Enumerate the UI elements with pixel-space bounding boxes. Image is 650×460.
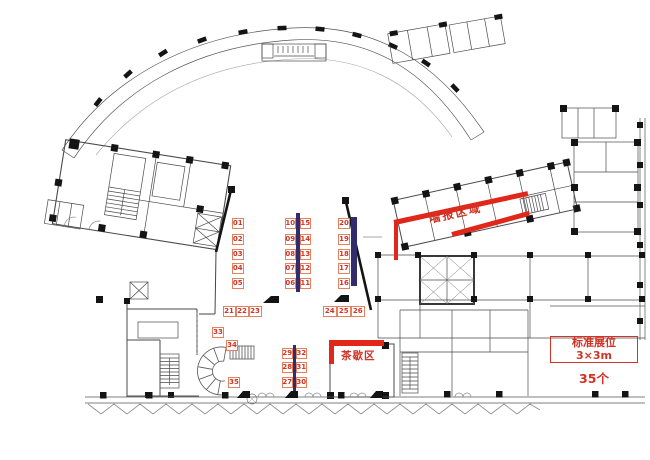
- tea-break-label: 茶歇区: [341, 348, 376, 363]
- legend-booth-count: 35个: [550, 368, 638, 387]
- poster-area-line-end: [394, 222, 399, 260]
- annotation-layer: 墙报区域 茶歇区 标准展位 3×3m 35个: [0, 0, 650, 460]
- tea-break-bracket-v: [329, 340, 334, 364]
- tea-break-bracket-h: [329, 340, 384, 346]
- floor-plan: 0102030405060708091011121314151617181920…: [0, 0, 650, 460]
- poster-area-label: 墙报区域: [427, 200, 483, 227]
- legend-box: 标准展位 3×3m: [550, 336, 638, 363]
- legend-booth-size: 3×3m: [576, 350, 612, 362]
- legend-booth-type: 标准展位: [572, 337, 616, 349]
